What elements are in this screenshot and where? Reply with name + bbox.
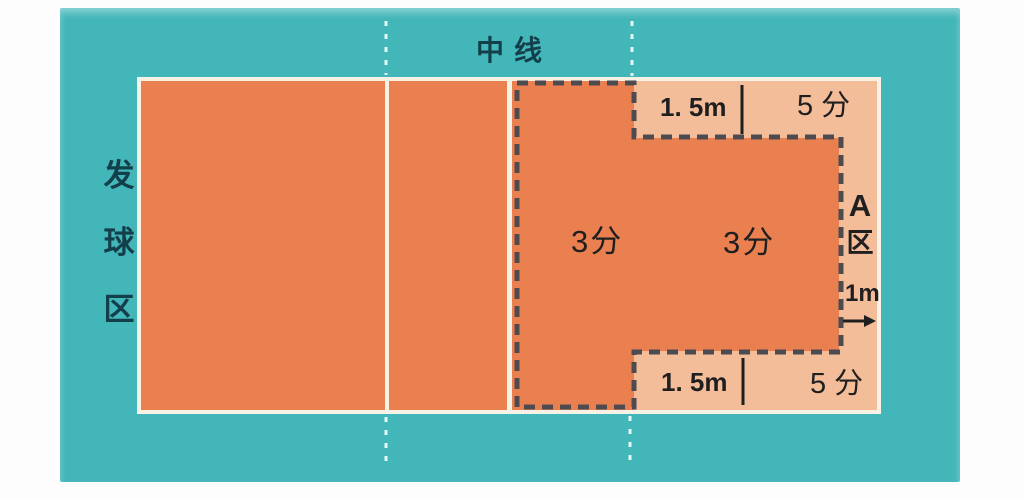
a-zone-label: A 区	[843, 190, 877, 257]
center-line	[507, 81, 512, 410]
serving-area-label: 发 球 区	[100, 160, 138, 325]
three-point-label-right: 3分	[723, 227, 775, 258]
five-point-label-bottom: 5 分	[810, 370, 863, 399]
a-zone-char: 区	[847, 230, 874, 257]
three-point-label-left: 3分	[571, 226, 623, 257]
five-point-label-top: 5 分	[797, 92, 850, 121]
dimension-1-5m-top: 1. 5m	[660, 94, 727, 120]
center-line-label: 中线	[476, 37, 552, 65]
attack-line	[385, 81, 389, 410]
court-diagram: 发 球 区 中线 3分 3分 5 分 5 分 1. 5m 1. 5m A 区 1…	[0, 0, 1024, 501]
dimension-1-5m-bottom: 1. 5m	[661, 369, 728, 395]
a-zone-letter: A	[849, 190, 871, 221]
serving-area-char-1: 发	[104, 160, 135, 191]
dimension-1m: 1m	[845, 282, 880, 306]
serving-area-char-3: 区	[104, 294, 135, 325]
serving-area-char-2: 球	[104, 227, 135, 258]
